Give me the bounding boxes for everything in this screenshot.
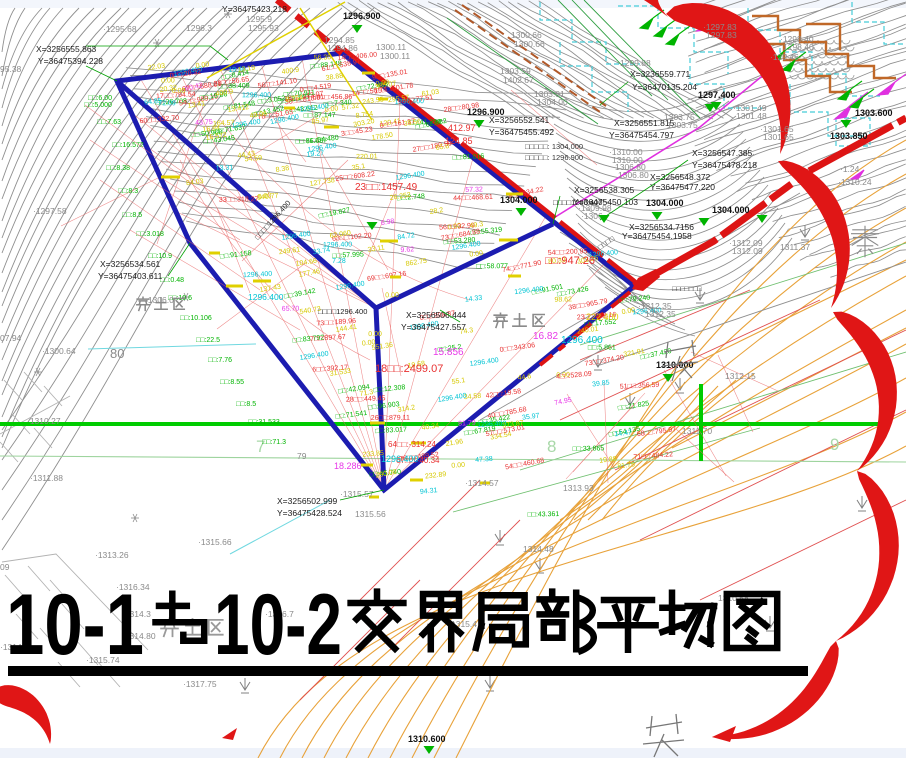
svg-text:Y=36475477.220: Y=36475477.220 — [650, 182, 715, 192]
svg-text:1303.850: 1303.850 — [830, 131, 868, 141]
svg-text:18.286: 18.286 — [334, 461, 362, 471]
svg-text:1315.56: 1315.56 — [355, 509, 386, 519]
svg-text:·1.24: ·1.24 — [840, 164, 860, 174]
svg-text:·1295.68: ·1295.68 — [103, 24, 137, 34]
svg-text:13.31: 13.31 — [216, 164, 234, 172]
svg-text:□□:8.5: □□:8.5 — [236, 401, 256, 408]
svg-text:X=3236559.771: X=3236559.771 — [630, 69, 691, 79]
svg-text:44□□:468.61: 44□□:468.61 — [453, 194, 493, 202]
svg-text:79: 79 — [297, 451, 307, 461]
svg-text:1297.400: 1297.400 — [698, 90, 736, 100]
svg-text:10-2: 10-2 — [214, 577, 342, 673]
svg-text:9.62: 9.62 — [400, 246, 414, 254]
svg-text:1311.70: 1311.70 — [682, 426, 712, 436]
svg-text:1310.600: 1310.600 — [408, 734, 446, 744]
svg-text:□□:22.5: □□:22.5 — [196, 337, 220, 344]
svg-text:47.38: 47.38 — [475, 456, 493, 464]
svg-text:1304.000: 1304.000 — [646, 198, 684, 208]
svg-text:1300.11: 1300.11 — [380, 51, 410, 61]
svg-text:X=3256551.815: X=3256551.815 — [614, 118, 675, 128]
svg-text:9: 9 — [830, 435, 839, 454]
svg-text:·1310.24: ·1310.24 — [838, 177, 872, 187]
svg-text:65.70: 65.70 — [282, 306, 300, 313]
svg-text:1304.000: 1304.000 — [712, 205, 750, 215]
svg-text:26□□:879.11: 26□□:879.11 — [371, 415, 410, 422]
svg-text:8: 8 — [547, 437, 556, 456]
svg-text:X=3256506.444: X=3256506.444 — [406, 310, 467, 320]
svg-text:95.38: 95.38 — [0, 64, 22, 74]
svg-text:57.32: 57.32 — [465, 186, 483, 193]
svg-text:·129.46: ·129.46 — [770, 52, 799, 62]
svg-text:1306.80: 1306.80 — [618, 170, 649, 180]
svg-text:1296.400: 1296.400 — [248, 292, 284, 302]
svg-text:124.85: 124.85 — [445, 136, 473, 146]
svg-text:81.79: 81.79 — [458, 420, 476, 428]
svg-text:·1297.58: ·1297.58 — [33, 206, 67, 216]
svg-text:43.75: 43.75 — [195, 119, 213, 127]
svg-text:□□:71.3: □□:71.3 — [262, 439, 286, 446]
svg-text:412.97: 412.97 — [448, 123, 476, 133]
svg-text:□□□□□: 1304.000: □□□□□: 1304.000 — [525, 142, 583, 151]
svg-text:□□:16.572: □□:16.572 — [112, 142, 144, 149]
svg-text:1312.15: 1312.15 — [725, 371, 756, 381]
svg-text:□□:3.018: □□:3.018 — [136, 231, 164, 238]
svg-text:1304.00: 1304.00 — [537, 97, 568, 107]
svg-text:1300.66: 1300.66 — [514, 39, 545, 49]
svg-text:15.856: 15.856 — [433, 347, 464, 358]
svg-text:1311.37: 1311.37 — [780, 242, 810, 252]
svg-text:1298.40: 1298.40 — [783, 42, 814, 52]
svg-text:16.82: 16.82 — [533, 331, 558, 342]
svg-text:Y=36475394.228: Y=36475394.228 — [38, 56, 103, 66]
svg-text:1299.88: 1299.88 — [620, 58, 651, 68]
svg-text:1297.83: 1297.83 — [706, 30, 737, 40]
svg-text:18□□:2499.07: 18□□:2499.07 — [375, 363, 443, 375]
svg-text:Y=36475423.218: Y=36475423.218 — [222, 4, 287, 14]
svg-text:□□:43.361: □□:43.361 — [527, 511, 559, 519]
svg-text:1296.900: 1296.900 — [467, 107, 505, 117]
svg-text:1402.67: 1402.67 — [503, 75, 534, 85]
svg-text:·1306.0: ·1306.0 — [145, 295, 174, 305]
svg-text:1303.600: 1303.600 — [855, 108, 893, 118]
svg-text:□□:8.5: □□:8.5 — [122, 212, 142, 219]
svg-text:□□:8.3: □□:8.3 — [118, 188, 138, 195]
svg-text:1301.48: 1301.48 — [736, 111, 767, 121]
svg-text:□□:8.38: □□:8.38 — [106, 165, 130, 172]
svg-text:□□:0.48: □□:0.48 — [160, 277, 184, 284]
svg-text:23□□:1457.49: 23□□:1457.49 — [355, 182, 418, 193]
svg-text:Y=36470135.204: Y=36470135.204 — [632, 82, 697, 92]
svg-text:07.94: 07.94 — [0, 333, 22, 343]
svg-text:Y=36475428.524: Y=36475428.524 — [277, 508, 342, 518]
svg-text:80: 80 — [110, 346, 124, 361]
svg-text:1301.65: 1301.65 — [763, 132, 794, 142]
svg-text:·1315.66: ·1315.66 — [198, 537, 232, 547]
svg-text:X=3256502.999: X=3256502.999 — [277, 496, 338, 506]
svg-text:□□:947.26: □□:947.26 — [545, 255, 595, 267]
svg-text:□□:58.077: □□:58.077 — [476, 263, 508, 270]
svg-text:Y=36475403.611: Y=36475403.611 — [98, 271, 163, 281]
svg-text:□□:6.00: □□:6.00 — [88, 95, 112, 102]
svg-text:X=3256534.561: X=3256534.561 — [100, 259, 161, 269]
svg-text:□□:33.865: □□:33.865 — [572, 445, 604, 453]
svg-text:09: 09 — [0, 562, 10, 572]
svg-text:□□□□1296.400: □□□□1296.400 — [318, 307, 367, 316]
svg-text:·1300.64: ·1300.64 — [42, 346, 76, 356]
svg-text:·1314.57: ·1314.57 — [465, 478, 499, 488]
svg-text:1313.93: 1313.93 — [563, 483, 594, 493]
svg-text:1314.48: 1314.48 — [523, 544, 554, 554]
svg-text:X=3256555.863: X=3256555.863 — [36, 44, 97, 54]
svg-text:·1311.88: ·1311.88 — [30, 473, 63, 483]
svg-text:7.28: 7.28 — [332, 258, 346, 265]
svg-text:·1317.75: ·1317.75 — [183, 679, 217, 689]
svg-text:1296.3: 1296.3 — [186, 23, 212, 33]
svg-text:1312.09: 1312.09 — [732, 246, 763, 256]
svg-text:Y=36475454.1958: Y=36475454.1958 — [622, 231, 692, 241]
svg-text:·1313.26: ·1313.26 — [95, 550, 129, 560]
svg-text:1296.900: 1296.900 — [343, 11, 381, 21]
svg-text:0.00: 0.00 — [451, 462, 465, 470]
svg-text:·1310.27: ·1310.27 — [27, 416, 61, 426]
svg-text:Y=36475478.218: Y=36475478.218 — [692, 160, 757, 170]
svg-text:1296.400: 1296.400 — [561, 335, 603, 346]
svg-text:Y=36475427.557: Y=36475427.557 — [401, 322, 466, 332]
svg-text:64□□:-314.24: 64□□:-314.24 — [388, 440, 436, 449]
svg-text:□□□□□: 1296.900: □□□□□: 1296.900 — [525, 153, 583, 162]
svg-text:33□□:318.27: 33□□:318.27 — [219, 196, 259, 204]
svg-text:□□:8.55: □□:8.55 — [220, 379, 244, 386]
svg-text:X=3256547.385: X=3256547.385 — [692, 148, 753, 158]
svg-text:□□:10.106: □□:10.106 — [180, 315, 212, 322]
svg-text:□□:31.533: □□:31.533 — [248, 419, 280, 426]
svg-text:X=3256538.305: X=3256538.305 — [574, 185, 635, 195]
svg-text:0.00: 0.00 — [469, 250, 483, 258]
svg-text:□□□□□□□: □□□□□□□ — [672, 286, 702, 293]
svg-text:Y=36475455.492: Y=36475455.492 — [489, 127, 554, 137]
svg-text:1296.400: 1296.400 — [381, 454, 419, 464]
svg-text:222.400: 222.400 — [586, 312, 619, 322]
svg-text:1295.93: 1295.93 — [248, 23, 279, 33]
svg-text:Y=36475454.797: Y=36475454.797 — [609, 130, 674, 140]
svg-text:56.35: 56.35 — [314, 54, 332, 62]
svg-text:□□:7.76: □□:7.76 — [208, 357, 232, 364]
svg-text:1312.35: 1312.35 — [645, 309, 676, 319]
svg-text:·1315.57: ·1315.57 — [340, 489, 374, 499]
svg-text:0.00: 0.00 — [385, 292, 399, 299]
svg-text:10-1: 10-1 — [6, 577, 144, 673]
svg-text:1304.000: 1304.000 — [500, 195, 538, 205]
svg-text:□□□□1296.400: □□□□1296.400 — [553, 198, 602, 207]
svg-text:□□:5.000: □□:5.000 — [84, 102, 112, 109]
svg-text:0.00: 0.00 — [368, 331, 382, 338]
svg-text:220.01: 220.01 — [356, 153, 378, 161]
svg-text:1294.86: 1294.86 — [327, 43, 358, 53]
